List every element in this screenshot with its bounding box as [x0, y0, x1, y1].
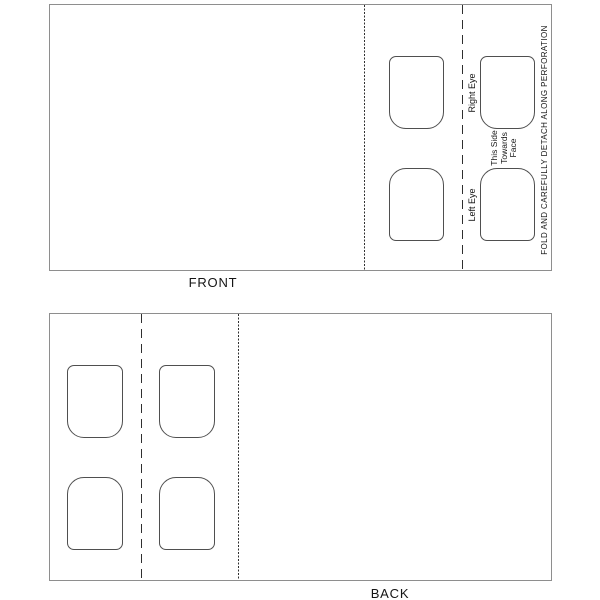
right-eye-label: Right Eye: [467, 73, 477, 112]
front-fold-lines: [50, 5, 551, 270]
side-note-line-3: Face: [509, 130, 519, 165]
back-eye-hole-left-bottom: [67, 477, 123, 550]
front-panel: Right Eye Left Eye This Side Towards Fac…: [49, 4, 552, 271]
glasses-template-sheet: Right Eye Left Eye This Side Towards Fac…: [0, 0, 600, 600]
front-eye-hole-middle-bottom: [389, 168, 444, 241]
front-eye-hole-middle-top: [389, 56, 444, 129]
back-caption: BACK: [371, 586, 410, 600]
left-eye-label: Left Eye: [467, 188, 477, 221]
front-caption: FRONT: [189, 275, 238, 290]
back-fold-lines: [50, 314, 551, 580]
fold-instruction-label: FOLD AND CAREFULLY DETACH ALONG PERFORAT…: [540, 25, 550, 255]
back-eye-hole-middle-bottom: [159, 477, 215, 550]
front-eye-hole-right-bottom: [480, 168, 535, 241]
back-eye-hole-middle-top: [159, 365, 215, 438]
front-eye-hole-right-top: [480, 56, 535, 129]
back-panel: [49, 313, 552, 581]
this-side-towards-face-label: This Side Towards Face: [490, 130, 519, 165]
back-eye-hole-left-top: [67, 365, 123, 438]
